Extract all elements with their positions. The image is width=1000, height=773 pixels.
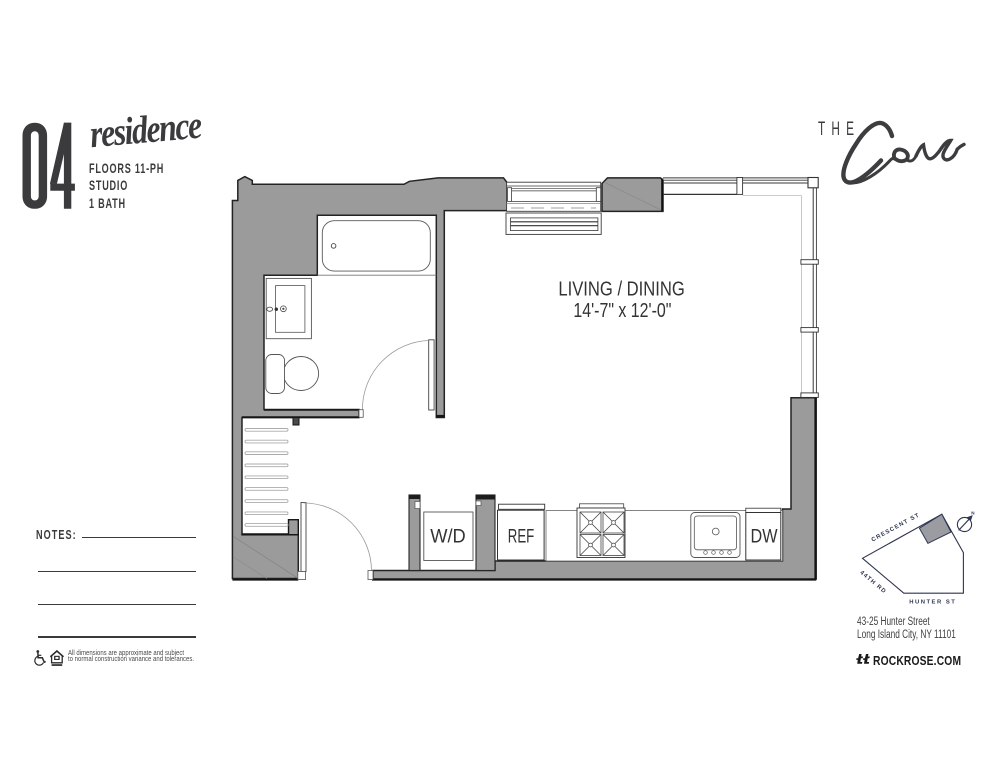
svg-text:N: N: [971, 511, 975, 516]
svg-text:DW: DW: [751, 527, 778, 548]
svg-text:LIVING / DINING: LIVING / DINING: [558, 279, 685, 301]
svg-text:HUNTER ST: HUNTER ST: [909, 600, 956, 606]
svg-text:14'-7" x 12'-0": 14'-7" x 12'-0": [573, 300, 671, 322]
svg-text:W/D: W/D: [430, 527, 466, 548]
svg-text:REF: REF: [508, 527, 535, 548]
